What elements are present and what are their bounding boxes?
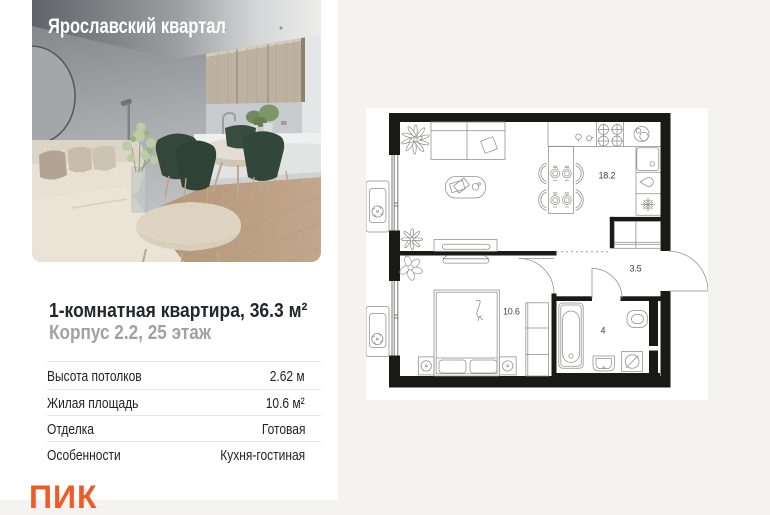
svg-text:10.6: 10.6 [503, 307, 520, 317]
svg-text:3.5: 3.5 [630, 264, 642, 274]
svg-text:18.2: 18.2 [599, 171, 616, 181]
svg-text:4: 4 [601, 326, 606, 336]
